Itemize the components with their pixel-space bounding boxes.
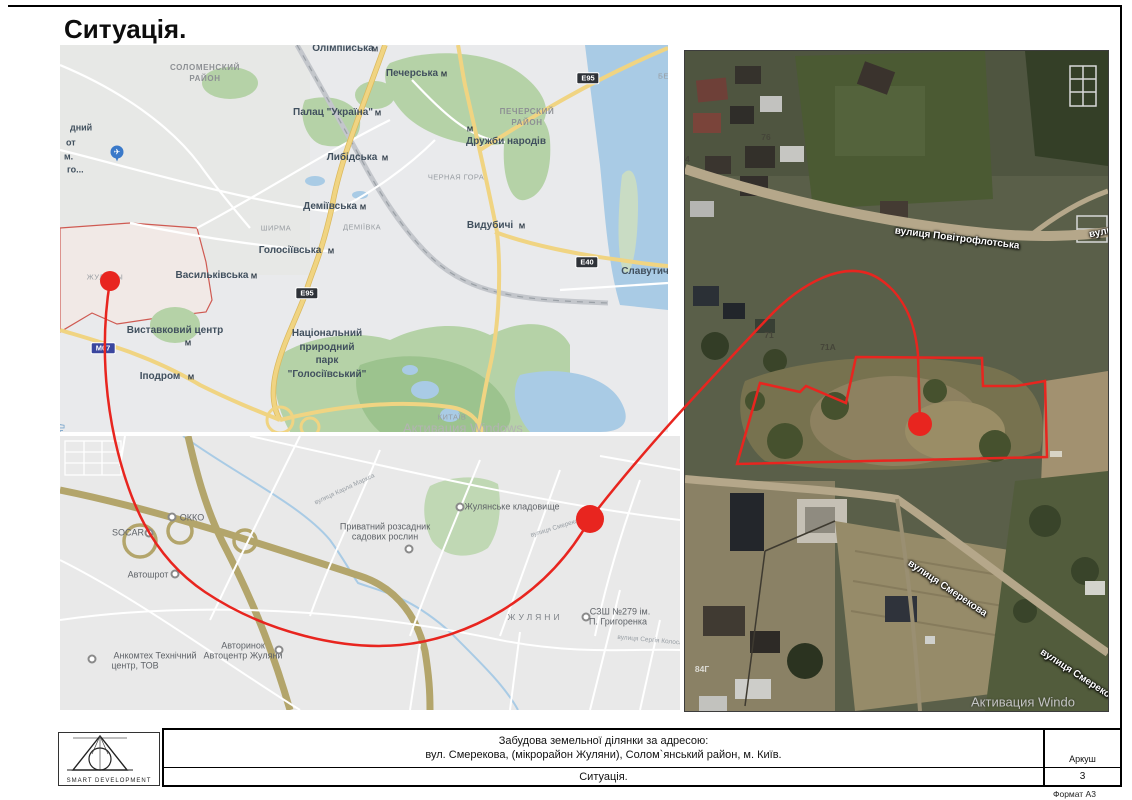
park-label: парк bbox=[316, 356, 339, 366]
project-line2: вул. Смерекова, (мікрорайон Жуляни), Сол… bbox=[425, 749, 781, 763]
area-label: БЕР bbox=[658, 72, 668, 80]
house-number: 71 bbox=[764, 331, 773, 340]
poi-marker-icon bbox=[145, 529, 154, 538]
poi-label: СЗШ №279 ім. bbox=[590, 608, 650, 617]
metro-station-label: Славутич bbox=[621, 267, 668, 277]
project-line1: Забудова земельної ділянки за адресою: bbox=[499, 735, 709, 749]
metro-icon: М bbox=[375, 109, 381, 117]
route-badge: E40 bbox=[575, 256, 598, 268]
logo-cell: SMART DEVELOPMENT bbox=[57, 728, 162, 787]
poi-label: Жулянське кладовище bbox=[464, 503, 559, 512]
house-number: 4 bbox=[685, 155, 690, 164]
windows-activation-watermark: Активация Windo bbox=[971, 696, 1075, 709]
format-label: Формат А3 bbox=[1053, 789, 1096, 799]
poi-label: ОККО bbox=[180, 514, 204, 523]
route-badge: M07 bbox=[91, 342, 116, 354]
drawing-title: Ситуація. bbox=[164, 768, 1043, 785]
airport-label-fragment: от bbox=[66, 139, 76, 148]
sheet-number: 3 bbox=[1045, 768, 1120, 785]
metro-station-label: Дружби народів bbox=[466, 137, 546, 147]
district-label: ПЕЧЕРСКИЙ bbox=[500, 108, 555, 116]
logo-triangle-icon bbox=[61, 734, 157, 774]
poi-marker-icon bbox=[275, 646, 284, 655]
metro-station-label: Деміївська bbox=[303, 202, 357, 212]
park-label: "Голосіївський" bbox=[288, 370, 367, 380]
area-label: ЖУЛЯНЫ bbox=[87, 273, 123, 281]
poi-label: Автошрот bbox=[128, 571, 169, 580]
house-number: 76 bbox=[761, 133, 770, 142]
logo-text: SMART DEVELOPMENT bbox=[59, 778, 159, 784]
metro-icon: М bbox=[441, 70, 447, 78]
poi-label: П. Григоренка bbox=[589, 618, 647, 627]
project-title-cell: Забудова земельної ділянки за адресою: в… bbox=[162, 728, 1045, 787]
frame-top-line bbox=[8, 5, 1122, 7]
district-label: РАЙОН bbox=[189, 75, 220, 83]
poi-marker-icon bbox=[168, 513, 177, 522]
windows-activation-watermark: Активация Windows bbox=[403, 422, 523, 433]
metro-station-label: Олімпійська bbox=[312, 45, 373, 54]
route-badge: E95 bbox=[576, 72, 599, 84]
city-overview-map: СОЛОМЕНСКИЙ РАЙОН Олімпійська М Печерськ… bbox=[60, 45, 668, 432]
district-label: СОЛОМЕНСКИЙ bbox=[170, 64, 240, 72]
sheet-label: Аркуш bbox=[1045, 730, 1120, 768]
metro-icon: М bbox=[467, 125, 473, 133]
metro-station-label: Либідська bbox=[327, 153, 378, 163]
metro-icon: М bbox=[188, 373, 194, 381]
poi-label: Приватний розсадник bbox=[340, 523, 430, 532]
metro-icon: М bbox=[251, 272, 257, 280]
satellite-map: вулиця Повітрофлотська вули вулиця Смере… bbox=[684, 50, 1109, 712]
poi-marker-icon bbox=[405, 545, 414, 554]
house-number: 71А bbox=[820, 343, 836, 352]
metro-station-label: Виставковий центр bbox=[127, 326, 224, 336]
metro-icon: М bbox=[372, 45, 378, 53]
airport-label-fragment: го... bbox=[67, 166, 84, 175]
poi-marker-icon bbox=[456, 503, 465, 512]
drawing-sheet: Ситуація. bbox=[0, 0, 1132, 800]
poi-label: центр, ТОВ bbox=[111, 662, 158, 671]
metro-icon: М bbox=[519, 222, 525, 230]
airport-icon: ✈ bbox=[111, 146, 124, 159]
river-label: Днепр bbox=[60, 423, 66, 432]
company-logo: SMART DEVELOPMENT bbox=[58, 732, 160, 786]
poi-label: Анкомтех Технічний bbox=[113, 652, 196, 661]
page-title: Ситуація. bbox=[64, 14, 186, 45]
project-description: Забудова земельної ділянки за адресою: в… bbox=[164, 730, 1043, 768]
area-label: ДЕМІЇВКА bbox=[343, 223, 381, 231]
airport-label-fragment: дний bbox=[70, 124, 92, 133]
metro-icon: М bbox=[382, 154, 388, 162]
metro-station-label: Печерська bbox=[386, 69, 438, 79]
sheet-cell: Аркуш 3 bbox=[1045, 728, 1122, 787]
metro-station-label: Видубичі bbox=[467, 221, 513, 231]
title-block: SMART DEVELOPMENT Забудова земельної діл… bbox=[57, 728, 1122, 787]
poi-label: SOCAR bbox=[112, 529, 144, 538]
satellite-graphics bbox=[685, 51, 1108, 711]
area-label: ШИРМА bbox=[261, 224, 291, 232]
poi-marker-icon bbox=[171, 570, 180, 579]
frame-right-line bbox=[1120, 5, 1122, 787]
area-label: ЧЕРНАЯ ГОРА bbox=[428, 173, 484, 181]
airport-label-fragment: м. bbox=[64, 153, 73, 162]
poi-label: садових рослин bbox=[352, 533, 418, 542]
street-map: ОККО SOCAR Автошрот Анкомтех Технічний ц… bbox=[60, 436, 680, 710]
metro-icon: М bbox=[328, 247, 334, 255]
park-label: природний bbox=[299, 343, 354, 353]
district-label: РАЙОН bbox=[511, 119, 542, 127]
metro-station-label: Голосіївська bbox=[259, 246, 322, 256]
route-badge: E95 bbox=[295, 287, 318, 299]
metro-station-label: Іподром bbox=[140, 372, 181, 382]
house-number: 84Г bbox=[695, 665, 709, 674]
poi-marker-icon bbox=[88, 655, 97, 664]
metro-icon: М bbox=[360, 203, 366, 211]
poi-label: Автоцентр Жуляни bbox=[204, 652, 283, 661]
area-label: ЖУЛЯНИ bbox=[507, 613, 562, 622]
metro-station-label: Палац "Україна" bbox=[293, 108, 373, 118]
metro-station-label: Васильківська bbox=[176, 271, 249, 281]
park-label: Національний bbox=[292, 329, 362, 339]
poi-label: Авторинок bbox=[221, 642, 265, 651]
metro-icon: М bbox=[185, 339, 191, 347]
